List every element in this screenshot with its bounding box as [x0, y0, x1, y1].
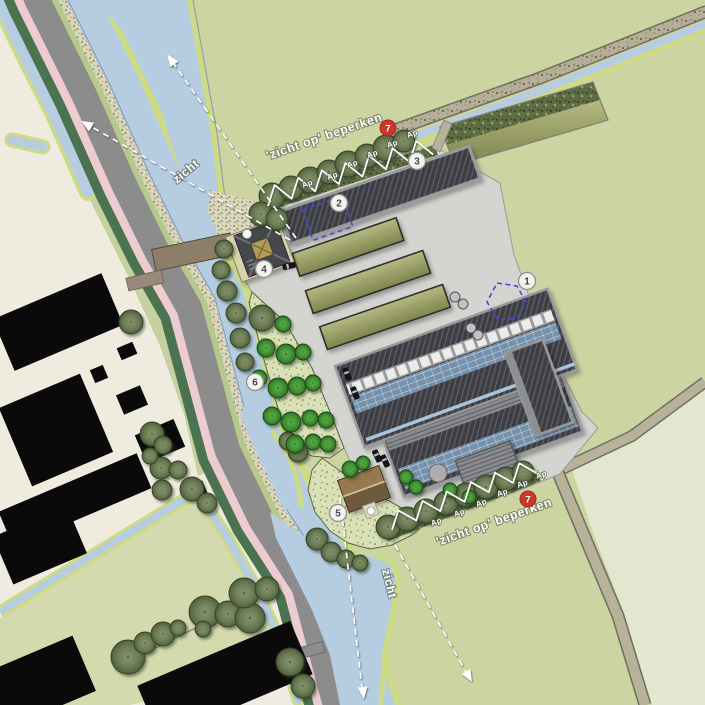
marker-1[interactable]: 1	[519, 273, 536, 290]
well-dot-garden	[367, 507, 375, 515]
svg-text:4: 4	[261, 265, 267, 276]
storage-tank	[429, 464, 447, 482]
marker-7-top[interactable]: 7	[380, 120, 396, 136]
marker-6[interactable]: 6	[247, 374, 264, 391]
marker-3[interactable]: 3	[409, 153, 426, 170]
svg-text:1: 1	[524, 277, 530, 288]
well-dot	[243, 230, 252, 239]
svg-text:7: 7	[525, 495, 530, 506]
marker-5[interactable]: 5	[330, 505, 347, 522]
svg-text:5: 5	[335, 509, 341, 520]
site-plan-map: Ap Ap Ap Ap Ap Ap Ap Ap Ap Ap Ap Ap 'zic…	[0, 0, 705, 705]
svg-text:6: 6	[252, 378, 258, 389]
svg-text:2: 2	[336, 199, 342, 210]
svg-text:7: 7	[385, 124, 390, 135]
marker-4[interactable]: 4	[256, 261, 273, 278]
marker-7-bottom[interactable]: 7	[520, 491, 536, 507]
site-plan-page: Ap Ap Ap Ap Ap Ap Ap Ap Ap Ap Ap Ap 'zic…	[0, 0, 705, 705]
svg-text:3: 3	[414, 157, 420, 168]
marker-2[interactable]: 2	[331, 195, 348, 212]
